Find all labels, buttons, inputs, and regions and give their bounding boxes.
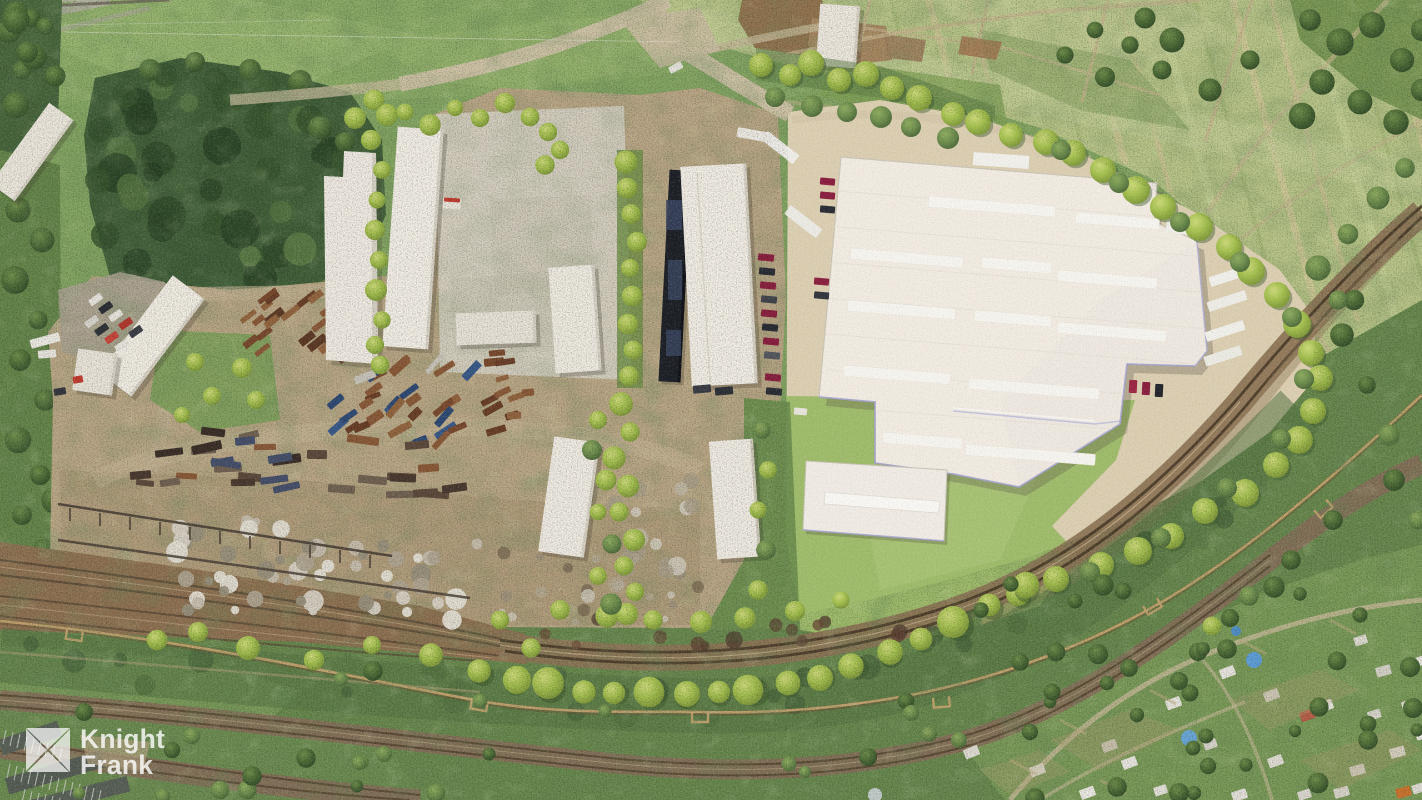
svg-text:Frank: Frank: [80, 750, 153, 780]
